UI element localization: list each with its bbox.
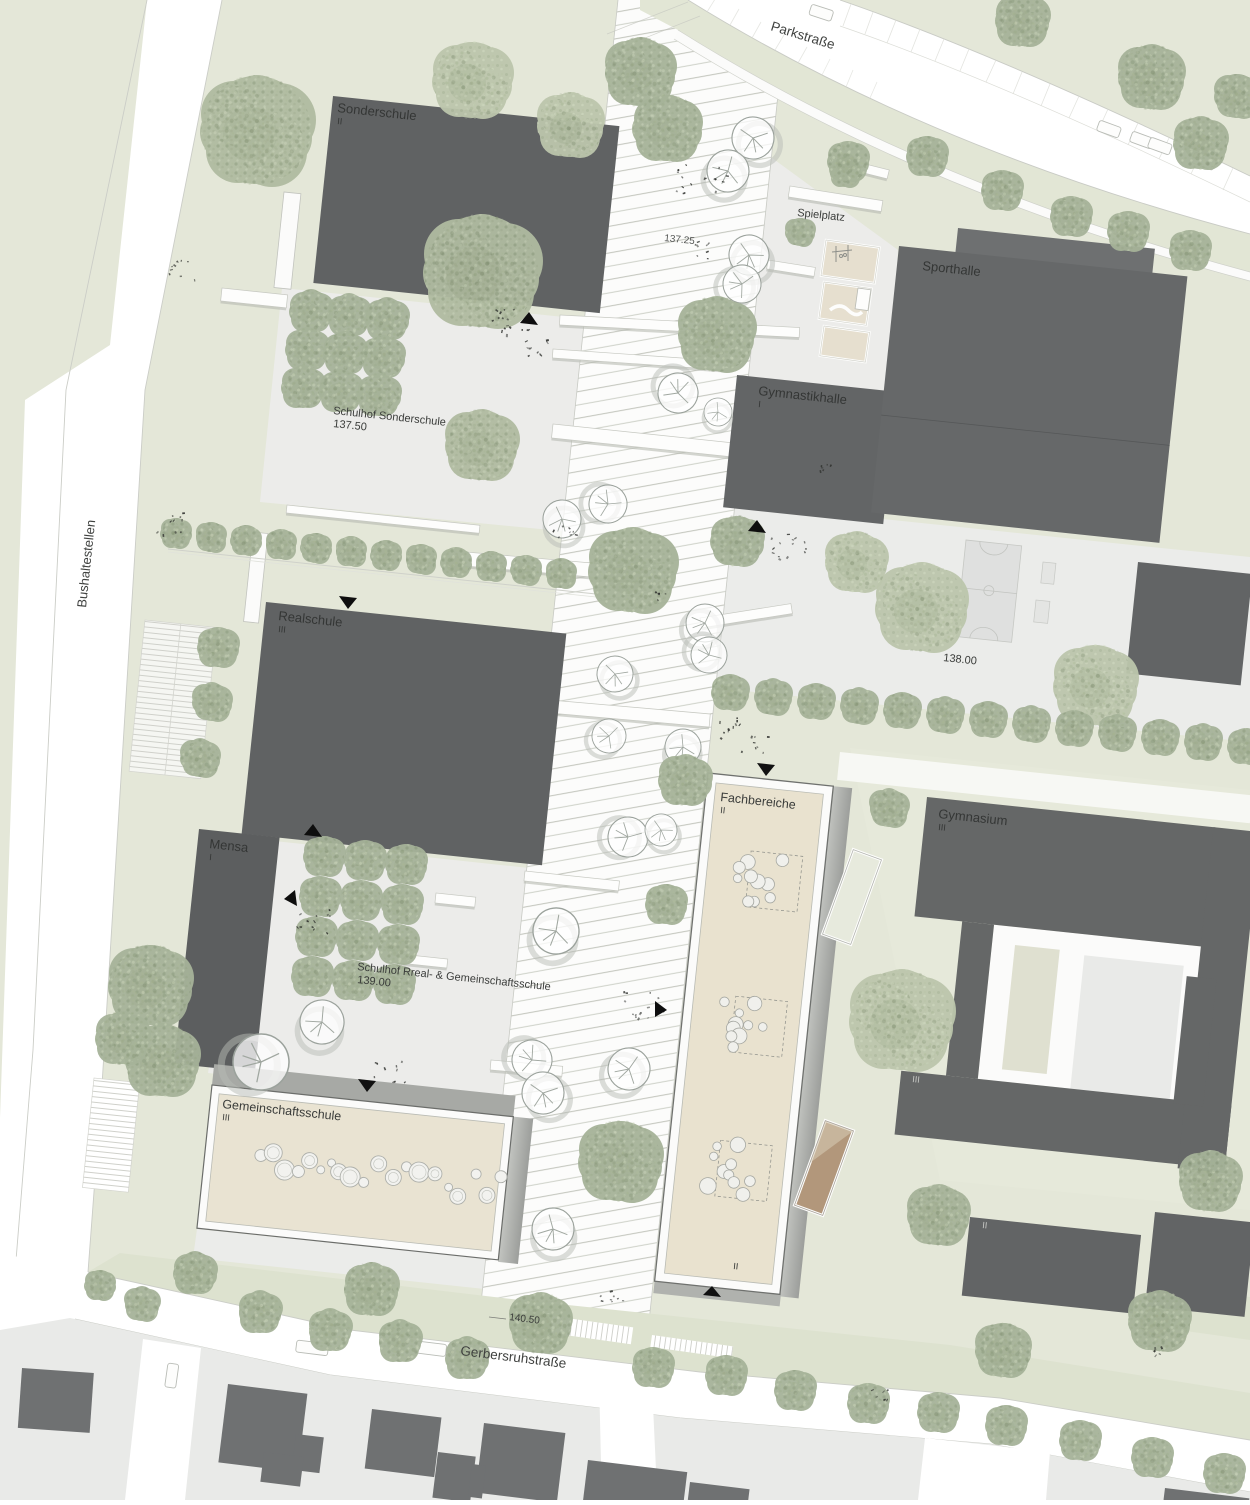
svg-text:III: III	[912, 1074, 921, 1085]
svg-text:II: II	[337, 116, 343, 126]
svg-text:III: III	[278, 624, 287, 635]
svg-text:II: II	[982, 1220, 988, 1230]
svg-text:II: II	[720, 805, 726, 815]
svg-text:II: II	[733, 1261, 739, 1271]
svg-text:III: III	[222, 1112, 231, 1123]
svg-text:III: III	[938, 822, 947, 833]
